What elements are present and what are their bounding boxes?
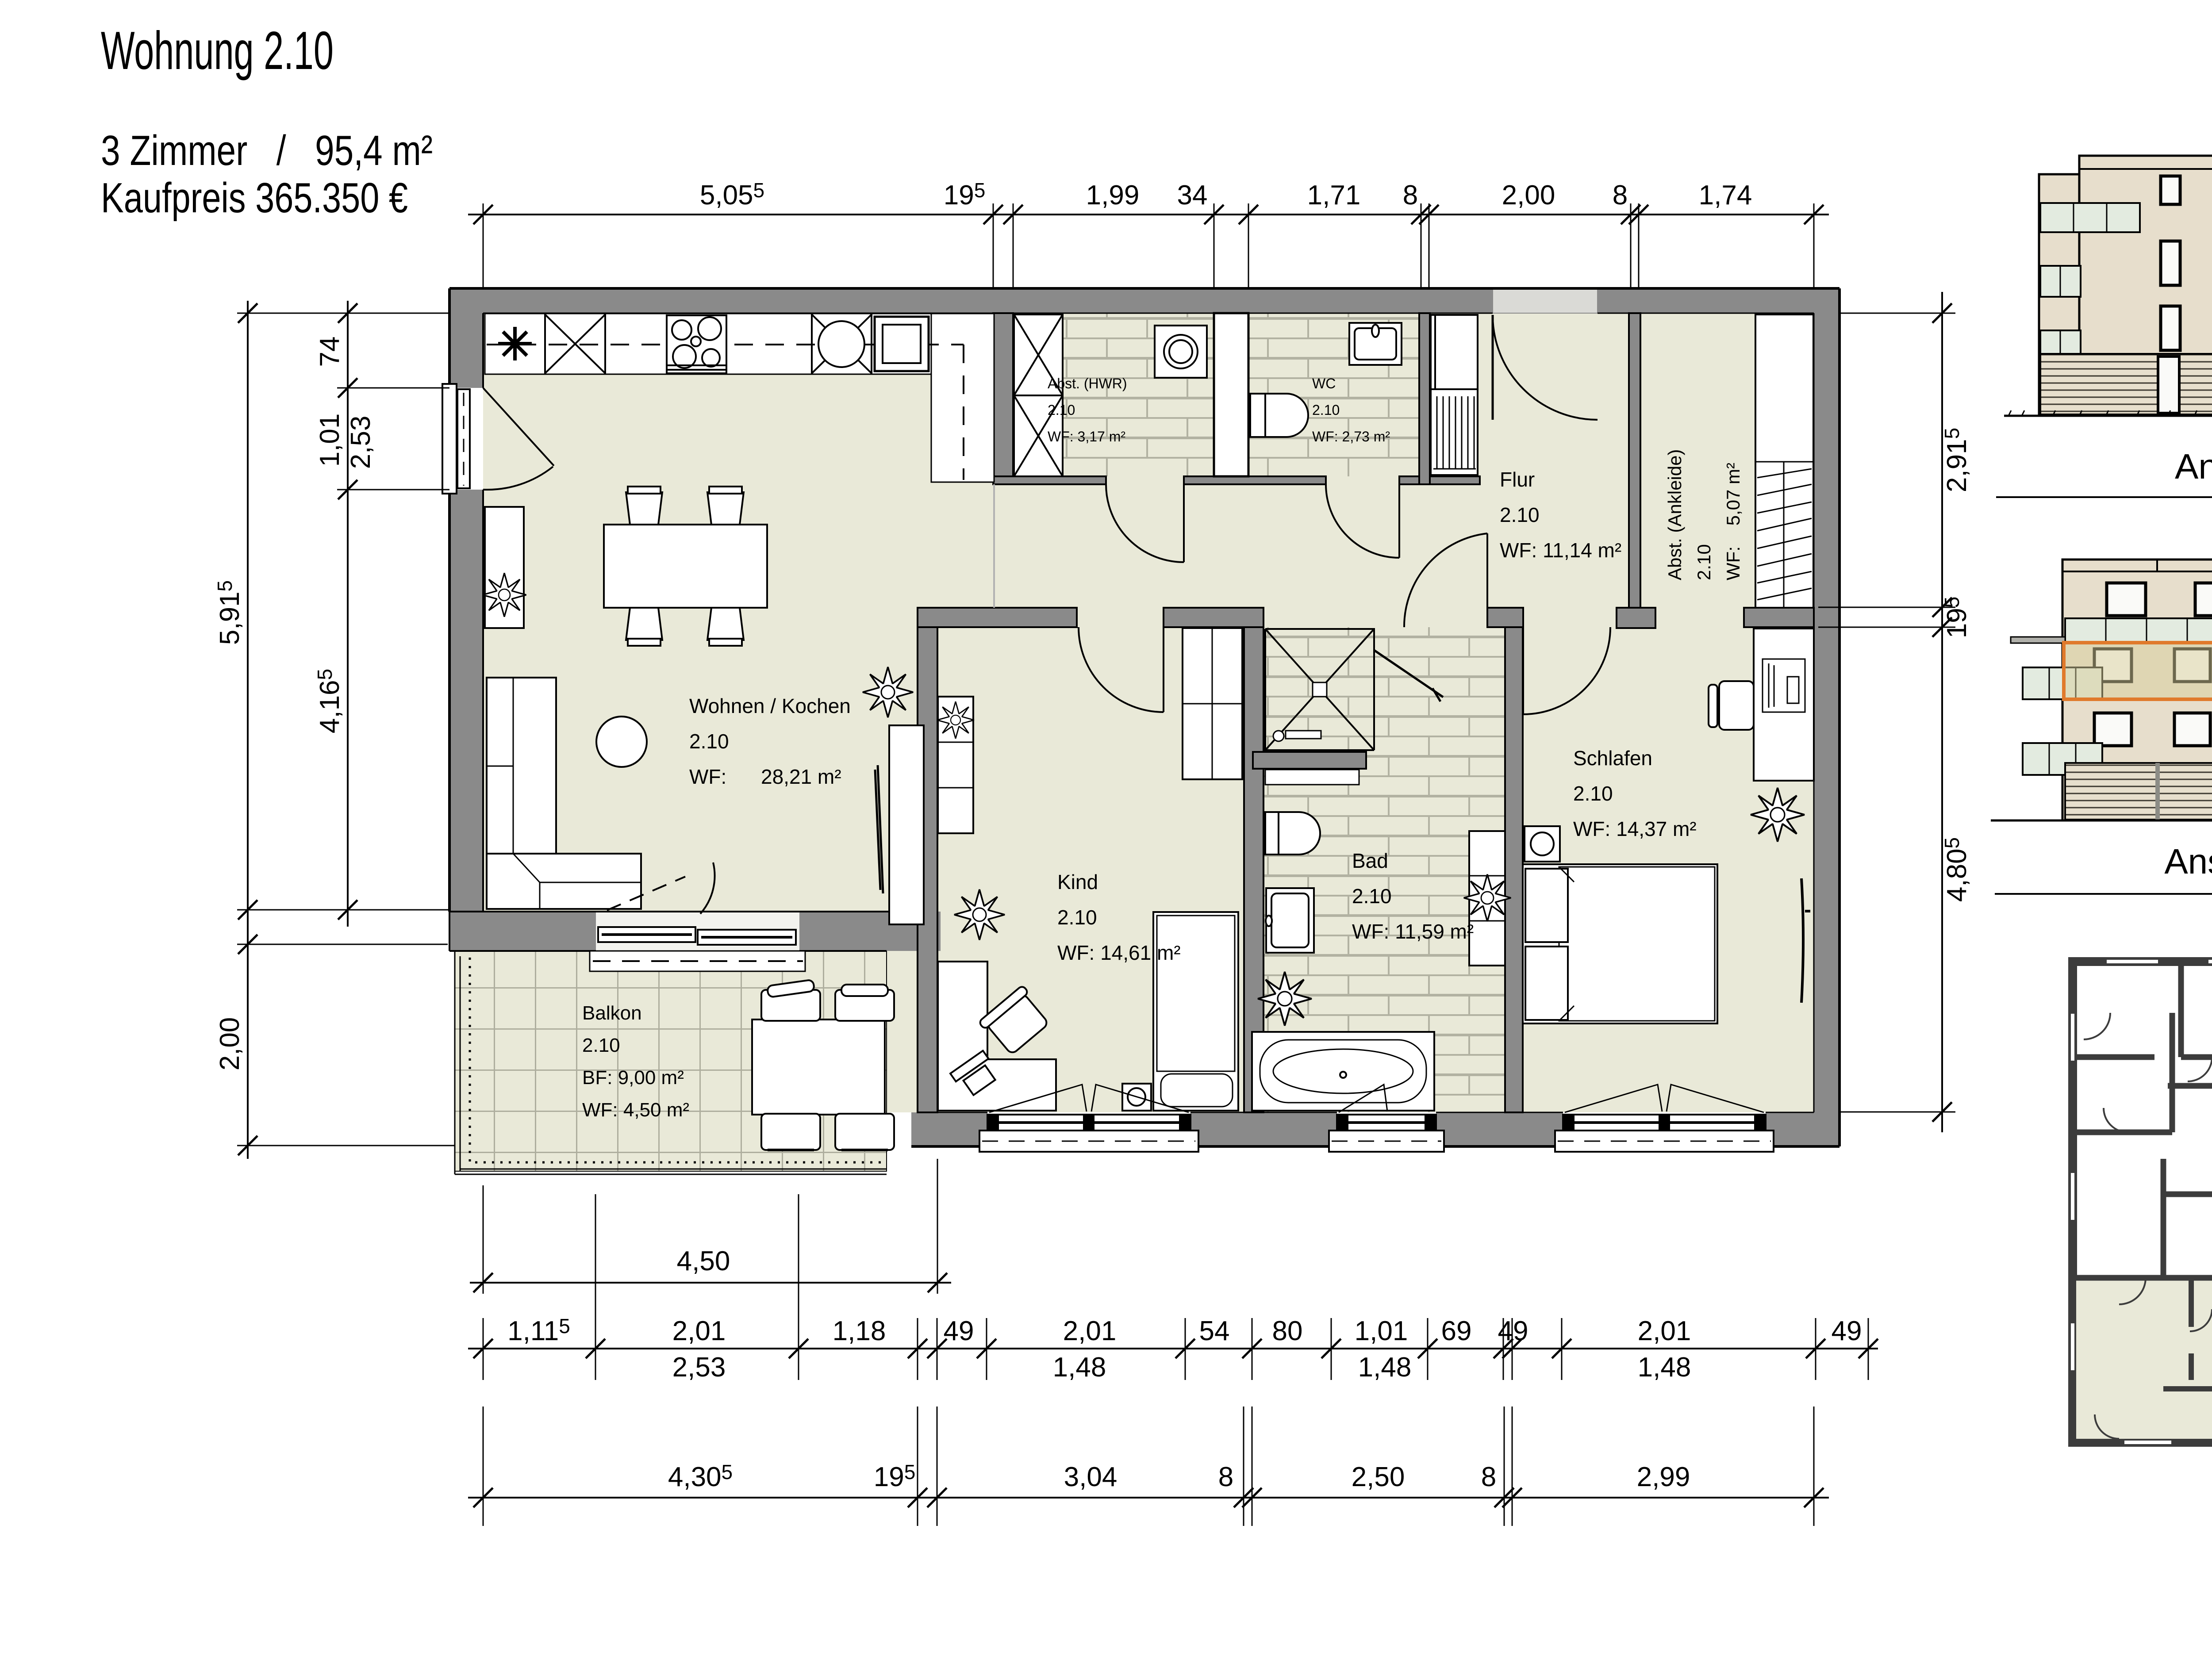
svg-text:49: 49 xyxy=(1498,1316,1528,1346)
svg-text:8: 8 xyxy=(1481,1462,1496,1492)
svg-text:Wohnung 2.10: Wohnung 2.10 xyxy=(101,20,334,80)
svg-text:2.10: 2.10 xyxy=(1500,503,1540,526)
svg-text:2,01: 2,01 xyxy=(1063,1316,1117,1346)
svg-text:Bad: Bad xyxy=(1352,849,1388,872)
svg-text:69: 69 xyxy=(1441,1316,1472,1346)
svg-text:34: 34 xyxy=(1177,180,1208,211)
svg-text:WF: 11,14 m²: WF: 11,14 m² xyxy=(1500,539,1621,562)
svg-text:1,18: 1,18 xyxy=(833,1316,886,1346)
svg-text:80: 80 xyxy=(1272,1316,1303,1346)
svg-text:2.10: 2.10 xyxy=(1312,402,1340,418)
svg-text:49: 49 xyxy=(1832,1316,1862,1346)
svg-text:8: 8 xyxy=(1613,180,1628,211)
svg-text:54: 54 xyxy=(1199,1316,1230,1346)
svg-text:74: 74 xyxy=(315,337,345,367)
svg-text:2,50: 2,50 xyxy=(1352,1462,1405,1492)
svg-text:2.10: 2.10 xyxy=(1694,544,1714,580)
svg-text:2,53: 2,53 xyxy=(672,1352,726,1383)
svg-text:WF: 2,73 m²: WF: 2,73 m² xyxy=(1312,429,1390,445)
svg-text:2,99: 2,99 xyxy=(1637,1462,1690,1492)
svg-text:WF: 14,37 m²: WF: 14,37 m² xyxy=(1573,817,1697,840)
svg-text:Wohnen / Kochen: Wohnen / Kochen xyxy=(689,694,851,717)
svg-text:1,01: 1,01 xyxy=(315,414,345,467)
svg-text:8: 8 xyxy=(1218,1462,1233,1492)
svg-text:Abst. (HWR): Abst. (HWR) xyxy=(1048,376,1127,391)
svg-text:Abst. (Ankleide): Abst. (Ankleide) xyxy=(1664,449,1685,580)
svg-text:WF:: WF: xyxy=(689,765,726,788)
svg-text:1,48: 1,48 xyxy=(1053,1352,1106,1383)
svg-text:Balkon: Balkon xyxy=(582,1002,642,1024)
svg-text:49: 49 xyxy=(944,1316,974,1346)
svg-text:Ansicht West: Ansicht West xyxy=(2164,842,2212,881)
svg-text:WF: 3,17 m²: WF: 3,17 m² xyxy=(1048,429,1125,445)
svg-text:1,48: 1,48 xyxy=(1638,1352,1691,1383)
svg-text:Kaufpreis 365.350 €: Kaufpreis 365.350 € xyxy=(101,174,408,222)
svg-text:WF: 11,59 m²: WF: 11,59 m² xyxy=(1352,920,1474,943)
svg-text:1,71: 1,71 xyxy=(1307,180,1361,211)
svg-text:2.10: 2.10 xyxy=(1057,906,1097,929)
svg-text:2.10: 2.10 xyxy=(582,1035,620,1056)
svg-text:8: 8 xyxy=(1403,180,1418,211)
svg-text:1,48: 1,48 xyxy=(1358,1352,1412,1383)
svg-text:2.10: 2.10 xyxy=(1352,885,1392,908)
svg-text:Ansicht Nord: Ansicht Nord xyxy=(2175,447,2212,486)
svg-text:3,04: 3,04 xyxy=(1064,1462,1118,1492)
svg-text:2.10: 2.10 xyxy=(1573,782,1613,805)
svg-text:WC: WC xyxy=(1312,376,1336,391)
svg-text:WF: 5,07 m²: WF: 5,07 m² xyxy=(1723,463,1743,580)
svg-text:2,00: 2,00 xyxy=(1502,180,1555,211)
svg-text:3 Zimmer / 95,4 m²: 3 Zimmer / 95,4 m² xyxy=(101,127,433,174)
svg-text:Flur: Flur xyxy=(1500,468,1535,491)
svg-text:2.10: 2.10 xyxy=(689,730,729,753)
svg-text:1,99: 1,99 xyxy=(1086,180,1140,211)
svg-text:2,00: 2,00 xyxy=(215,1017,245,1071)
svg-text:Kind: Kind xyxy=(1057,870,1098,893)
svg-text:1,01: 1,01 xyxy=(1355,1316,1408,1346)
svg-text:BF: 9,00 m²: BF: 9,00 m² xyxy=(582,1067,684,1088)
svg-text:2,01: 2,01 xyxy=(1638,1316,1691,1346)
svg-text:2,53: 2,53 xyxy=(346,416,376,469)
svg-text:WF: 4,50 m²: WF: 4,50 m² xyxy=(582,1099,689,1121)
svg-text:28,21 m²: 28,21 m² xyxy=(761,765,841,788)
svg-text:Schlafen: Schlafen xyxy=(1573,747,1652,770)
svg-text:1,74: 1,74 xyxy=(1699,180,1752,211)
svg-text:4,50: 4,50 xyxy=(677,1246,730,1276)
svg-text:WF: 14,61 m²: WF: 14,61 m² xyxy=(1057,941,1181,964)
svg-text:2,01: 2,01 xyxy=(672,1316,726,1346)
svg-text:2.10: 2.10 xyxy=(1048,402,1075,418)
